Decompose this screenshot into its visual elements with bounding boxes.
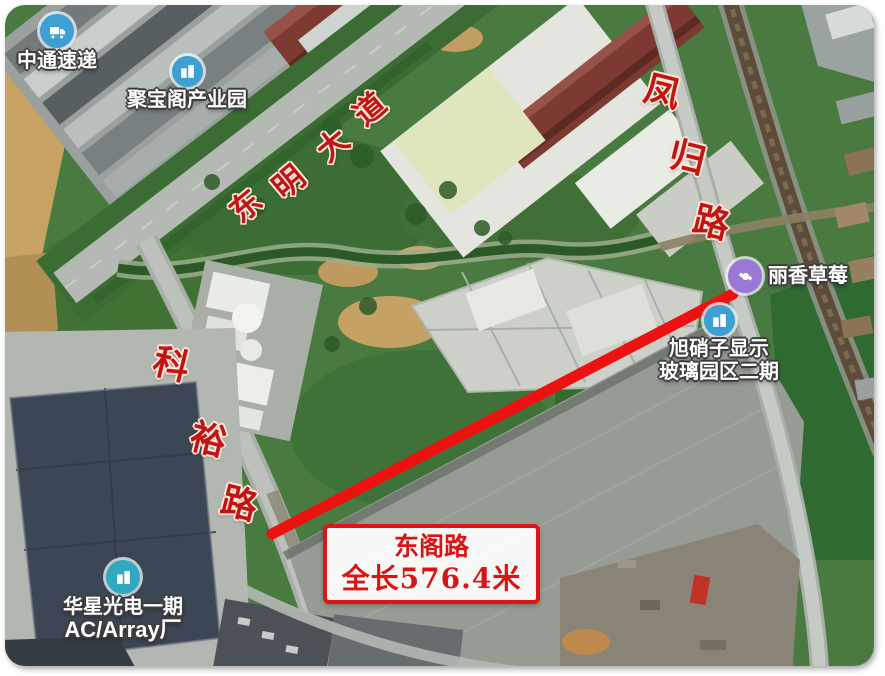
route-road-name: 东阁路: [394, 532, 469, 562]
poi-label: 聚宝阁产业园: [127, 88, 247, 113]
building-icon: [704, 305, 735, 336]
road-label-char: 凤: [639, 59, 687, 118]
road-label-char: 路: [216, 471, 264, 530]
truck-icon: [40, 14, 74, 48]
poi-zto-express: 中通速递: [17, 14, 97, 74]
poi-label: 中通速递: [17, 49, 97, 74]
route-length-label: 全长576.4米: [342, 562, 522, 596]
poi-jubaoge-park: 聚宝阁产业园: [127, 56, 247, 113]
road-label-char: 科: [148, 332, 196, 391]
road-label-char: 东: [218, 177, 271, 231]
poi-label-line2: AC/Array厂: [64, 617, 181, 642]
route-info-box: 东阁路 全长576.4米: [323, 524, 540, 604]
poi-lixiang-strawberry: 丽香草莓: [728, 259, 848, 293]
road-label-char: 路: [688, 190, 736, 249]
road-label-char: 裕: [185, 407, 233, 466]
page: 中通速递 聚宝阁产业园 丽香草莓: [0, 0, 885, 676]
poi-huaxing-factory: 华星光电一期 AC/Array厂: [63, 560, 183, 642]
poi-asahi-glass-park: 旭硝子显示 玻璃园区二期: [659, 305, 779, 385]
road-label-char: 明: [261, 153, 314, 207]
map-image-card: 中通速递 聚宝阁产业园 丽香草莓: [5, 5, 874, 666]
building-icon: [106, 560, 140, 594]
road-label-char: 归: [664, 125, 712, 184]
poi-label-line2: 玻璃园区二期: [659, 360, 779, 385]
labels-overlay: 中通速递 聚宝阁产业园 丽香草莓: [5, 5, 874, 666]
poi-label-line1: 旭硝子显示: [669, 337, 769, 362]
candy-icon: [728, 259, 762, 293]
road-label-char: 大: [305, 116, 358, 170]
poi-label: 丽香草莓: [768, 264, 848, 289]
building-icon: [172, 56, 203, 87]
map-world: 中通速递 聚宝阁产业园 丽香草莓: [5, 5, 874, 666]
road-label-char: 道: [342, 80, 395, 134]
